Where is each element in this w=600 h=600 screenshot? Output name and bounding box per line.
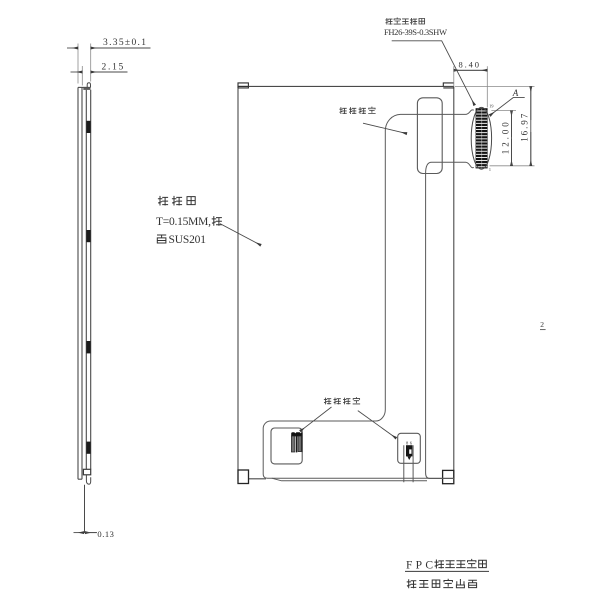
svg-text:FPC: FPC — [406, 559, 433, 571]
svg-text:FH26-39S-0.3SHW: FH26-39S-0.3SHW — [384, 27, 447, 37]
svg-text:2: 2 — [540, 320, 544, 329]
svg-text:2.15: 2.15 — [102, 63, 124, 73]
svg-text:3.35±0.1: 3.35±0.1 — [103, 38, 146, 48]
svg-text:86: 86 — [406, 441, 413, 446]
svg-text:1: 1 — [489, 167, 491, 172]
svg-text:0.13: 0.13 — [97, 529, 114, 539]
svg-text:16.97: 16.97 — [519, 113, 529, 142]
svg-text:A: A — [512, 88, 519, 98]
svg-text:T=0.15MM,: T=0.15MM, — [156, 216, 211, 228]
svg-text:SUS201: SUS201 — [169, 234, 207, 246]
svg-text:8.40: 8.40 — [459, 60, 480, 70]
svg-text:12.00: 12.00 — [500, 122, 510, 155]
svg-text:19: 19 — [489, 104, 493, 109]
